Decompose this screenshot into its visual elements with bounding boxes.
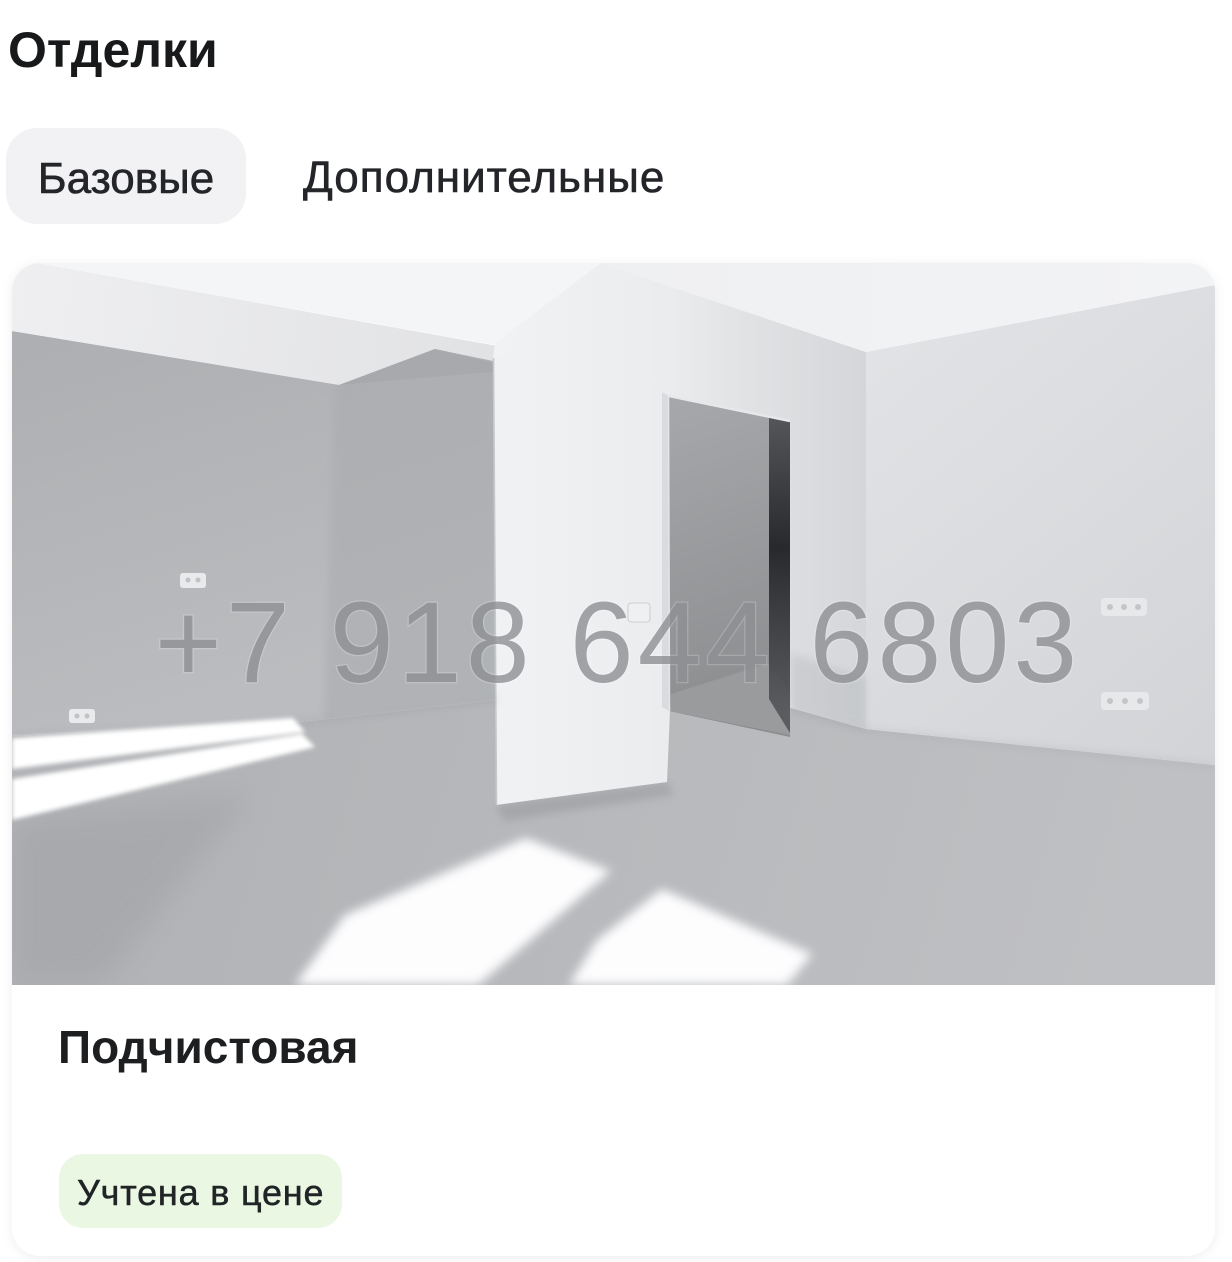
svg-text:+7 918 644 6803: +7 918 644 6803 [155, 579, 1082, 707]
